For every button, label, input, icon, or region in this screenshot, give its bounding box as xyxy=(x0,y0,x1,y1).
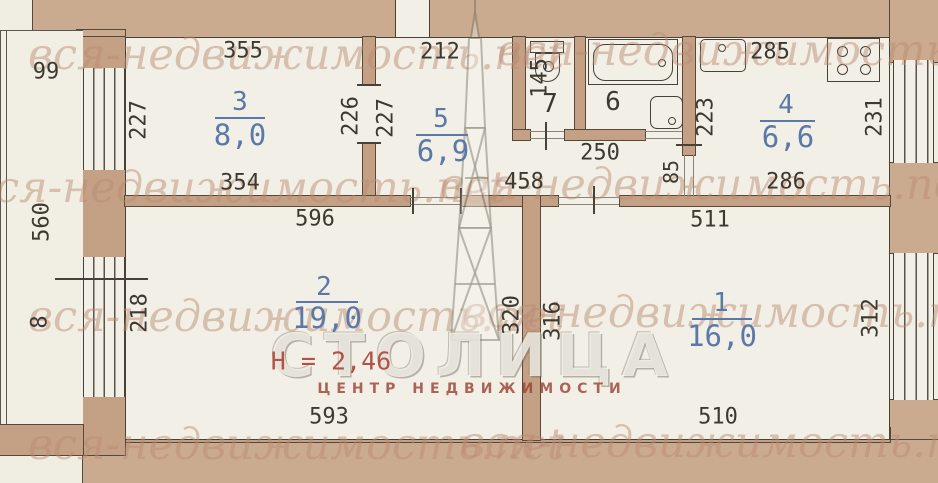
stove-burner-icon xyxy=(860,64,871,75)
dim-218: 218 xyxy=(128,293,153,333)
wall xyxy=(363,37,375,85)
stove-icon xyxy=(827,38,880,82)
stove-burner-icon xyxy=(860,46,871,57)
dimension-tick xyxy=(676,144,702,146)
dim-510: 510 xyxy=(698,405,738,430)
stove-burner-icon xyxy=(837,64,848,75)
ceiling-height-note: Н = 2,46 xyxy=(271,347,391,376)
toilet-icon xyxy=(530,41,564,53)
room-7-number: 7 xyxy=(542,89,558,119)
floor-plan: 355 212 285 354 596 458 250 286 511 593 … xyxy=(0,0,938,483)
room-4-area: 6,6 xyxy=(762,120,814,154)
dim-85: 85 xyxy=(659,160,683,184)
dim-286: 286 xyxy=(766,170,806,195)
dimension-tick xyxy=(593,186,595,214)
dim-231: 231 xyxy=(863,97,888,137)
window xyxy=(83,68,125,170)
dim-560: 560 xyxy=(30,202,55,242)
dim-354: 354 xyxy=(220,171,260,196)
dim-8-balcony: 8 xyxy=(28,315,53,328)
wall xyxy=(575,37,585,130)
wall xyxy=(683,37,695,155)
wall xyxy=(0,425,83,455)
dimension-tick xyxy=(545,122,547,150)
dim-593: 593 xyxy=(309,405,349,430)
door-opening xyxy=(530,131,565,139)
room-5-number: 5 xyxy=(433,104,449,134)
door-opening xyxy=(684,155,694,196)
room-1-number: 1 xyxy=(713,288,729,318)
room-2-number: 2 xyxy=(316,272,332,302)
wall xyxy=(83,440,938,483)
room-3-area: 8,0 xyxy=(214,118,266,152)
dim-227-room5: 227 xyxy=(374,98,399,138)
dim-458: 458 xyxy=(504,170,544,195)
dim-223: 223 xyxy=(694,97,719,137)
door-opening xyxy=(558,197,620,205)
room-4-number: 4 xyxy=(778,90,794,120)
bathtub-drain-icon xyxy=(658,59,666,67)
wall xyxy=(83,397,125,455)
wall xyxy=(125,196,410,206)
room-1-area: 16,0 xyxy=(687,319,757,353)
wall xyxy=(620,196,890,206)
wall xyxy=(540,196,558,206)
door-opening xyxy=(645,131,683,139)
dim-227-room3: 227 xyxy=(127,100,152,140)
wall xyxy=(565,130,645,140)
kitchen-sink-tap-icon xyxy=(718,44,726,52)
room-6-number: 6 xyxy=(605,87,621,117)
room-5-area: 6,9 xyxy=(417,134,469,168)
door-jamb xyxy=(357,142,381,144)
room-3-number: 3 xyxy=(232,87,248,117)
dim-250: 250 xyxy=(580,141,620,166)
wall xyxy=(83,170,125,257)
balcony-railing-line xyxy=(6,30,9,425)
logo-subtitle: ЦЕНТР НЕДВИЖИМОСТИ xyxy=(317,381,626,397)
wall xyxy=(523,196,540,440)
wall xyxy=(363,143,375,200)
door-jamb xyxy=(357,84,381,86)
dim-212: 212 xyxy=(420,40,460,65)
dim-316: 316 xyxy=(541,301,566,341)
dim-99: 99 xyxy=(33,60,60,85)
dim-226: 226 xyxy=(339,96,364,136)
dimension-tick xyxy=(412,188,414,214)
window xyxy=(893,253,934,400)
window xyxy=(893,60,934,163)
room-2-area: 19,0 xyxy=(292,301,362,335)
wall xyxy=(890,0,938,62)
dim-511: 511 xyxy=(690,208,730,233)
washbasin-icon xyxy=(650,96,683,129)
stove-burner-icon xyxy=(837,46,848,57)
dim-285: 285 xyxy=(750,40,790,65)
dim-320: 320 xyxy=(500,295,525,335)
dim-312: 312 xyxy=(859,298,884,338)
wall xyxy=(890,163,938,253)
dim-355: 355 xyxy=(223,39,263,64)
dimension-tick xyxy=(55,278,148,280)
washbasin-tap-icon xyxy=(668,117,676,125)
dim-596: 596 xyxy=(295,207,335,232)
wall xyxy=(83,37,125,70)
